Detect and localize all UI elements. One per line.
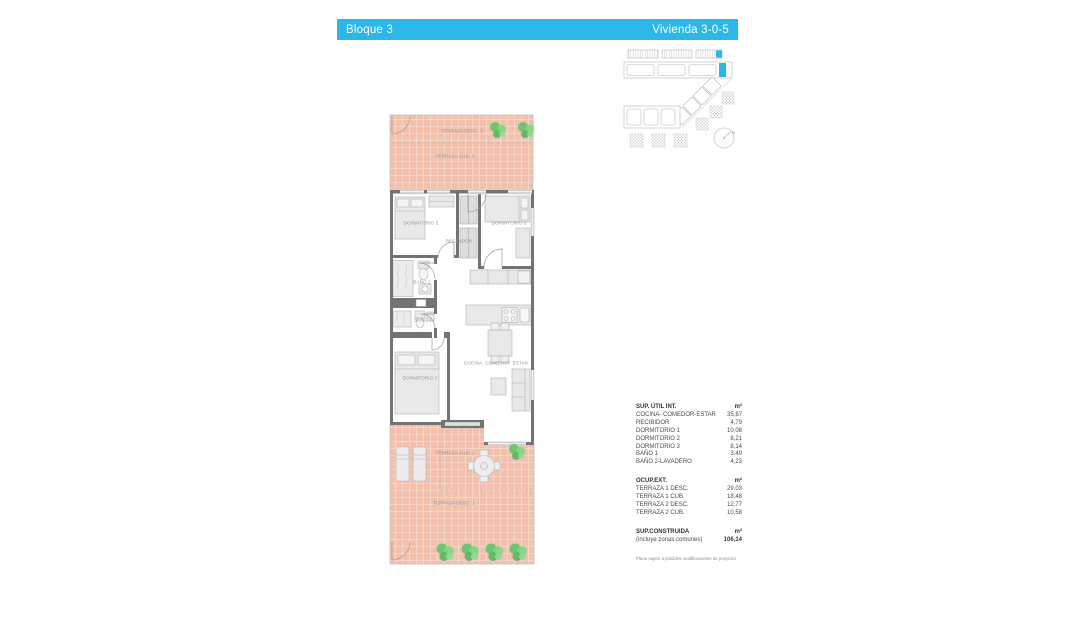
row-label: BAÑO 2-LAVADERO	[636, 459, 692, 467]
sup-util-table: SUP. ÚTIL INT. m² COCINA- COMEDOR-ESTAR3…	[636, 404, 742, 467]
room-label-recibidor: RECIBIDOR	[446, 238, 472, 243]
table-header: SUP.CONSTRUIDA m²	[636, 529, 742, 537]
room-label-terraza-cub-1: TERRAZA CUB. 1	[436, 450, 475, 455]
room-label-terraza-cub-2: TERRAZA CUB. 2	[436, 153, 475, 158]
north-arrow-icon: N	[714, 128, 735, 148]
bed-dormitorio-3	[485, 196, 530, 222]
row-label: DORMITORIO 1	[636, 428, 680, 436]
row-value: 12,77	[727, 502, 742, 510]
row-label: (incluye zonas comunes)	[636, 537, 702, 545]
row-value: 4,79	[730, 420, 742, 428]
table-header: SUP. ÚTIL INT. m²	[636, 404, 742, 412]
table-row: COCINA- COMEDOR-ESTAR35,87	[636, 412, 742, 420]
bed-dormitorio-2	[395, 197, 425, 239]
table-header: OCUP.EXT. m²	[636, 478, 742, 486]
row-value: 8,21	[730, 436, 742, 444]
kitchen-counter	[470, 270, 531, 284]
table-row: DORMITORIO 110,08	[636, 428, 742, 436]
highlighted-terrace	[716, 50, 722, 57]
block-title: Bloque 3	[346, 24, 393, 36]
balcony-strips	[628, 50, 722, 58]
row-label: TERRAZA 2 DESC.	[636, 502, 689, 510]
highlighted-unit	[719, 63, 726, 77]
building-block-bottom	[624, 106, 680, 128]
row-label: RECIBIDOR	[636, 420, 669, 428]
table-unit: m²	[735, 404, 742, 412]
row-value: 10,08	[727, 428, 742, 436]
row-value: 106,14	[724, 537, 742, 545]
row-value: 18,48	[727, 494, 742, 502]
row-value: 8,14	[730, 444, 742, 452]
row-value: 10,58	[727, 510, 742, 518]
ocup-ext-table: OCUP.EXT. m² TERRAZA 1 DESC.29,03 TERRAZ…	[636, 478, 742, 518]
bed-dormitorio-1	[395, 352, 439, 414]
key-plan: N	[620, 48, 748, 152]
sup-construida-table: SUP.CONSTRUIDA m² (incluye zonas comunes…	[636, 529, 742, 545]
shaft	[416, 300, 426, 307]
room-label-dormitorio-1: DORMITORIO 1	[403, 375, 438, 380]
table-row: BAÑO 2-LAVADERO4,23	[636, 459, 742, 467]
unit-title: Vivienda 3-0-5	[652, 24, 729, 36]
room-label-cocina: COCINA. COMEDOR. ESTAR	[464, 360, 528, 365]
table-row: RECIBIDOR4,79	[636, 420, 742, 428]
room-label-bano-1: BAÑO 1	[414, 317, 431, 322]
room-label-dormitorio-2: DORMITORIO 2	[404, 220, 439, 225]
row-label: DORMITORIO 2	[636, 436, 680, 444]
row-value: 35,87	[727, 412, 742, 420]
row-label: TERRAZA 1 DESC.	[636, 486, 689, 494]
building-block-top	[624, 62, 732, 78]
floor-plan: TERRAZA DESC. 2 TERRAZA CUB. 2 DORMITORI…	[388, 112, 538, 567]
row-value: 29,03	[727, 486, 742, 494]
table-unit: m²	[735, 478, 742, 486]
dresser-dormitorio-3	[516, 228, 530, 258]
table-unit: m²	[735, 529, 742, 537]
table-row: (incluye zonas comunes) 106,14	[636, 537, 742, 545]
table-row: TERRAZA 1 DESC.29,03	[636, 486, 742, 494]
floor-plan-drawing	[388, 112, 538, 567]
table-row: TERRAZA 2 CUB.10,58	[636, 510, 742, 518]
coffee-table	[491, 378, 506, 395]
kitchen-island	[466, 305, 531, 325]
row-value: 4,23	[730, 459, 742, 467]
room-label-terraza-desc-2: TERRAZA DESC. 2	[441, 128, 483, 133]
title-bar: Bloque 3 Vivienda 3-0-5	[337, 19, 738, 40]
footnote: Plano sujeto a posibles modificaciones d…	[636, 556, 694, 561]
row-value: 3,49	[730, 451, 742, 459]
room-label-terraza-desc-1: TERRAZA DESC. 1	[433, 500, 475, 505]
table-row: DORMITORIO 28,21	[636, 436, 742, 444]
table-title: SUP. ÚTIL INT.	[636, 404, 676, 412]
table-title: OCUP.EXT.	[636, 478, 667, 486]
row-label: COCINA- COMEDOR-ESTAR	[636, 412, 716, 420]
svg-text:N: N	[732, 130, 735, 135]
table-row: TERRAZA 1 CUB.18,48	[636, 494, 742, 502]
room-label-dormitorio-3: DORMITORIO 3	[492, 220, 527, 225]
room-label-bano-2: BAÑO 2	[413, 279, 430, 284]
row-label: TERRAZA 2 CUB.	[636, 510, 685, 518]
surface-summary: SUP. ÚTIL INT. m² COCINA- COMEDOR-ESTAR3…	[636, 404, 742, 565]
sofa	[512, 369, 530, 411]
plan-sheet: Bloque 3 Vivienda 3-0-5	[0, 0, 1070, 620]
table-title: SUP.CONSTRUIDA	[636, 529, 689, 537]
table-row: TERRAZA 2 DESC.12,77	[636, 502, 742, 510]
row-label: TERRAZA 1 CUB.	[636, 494, 685, 502]
